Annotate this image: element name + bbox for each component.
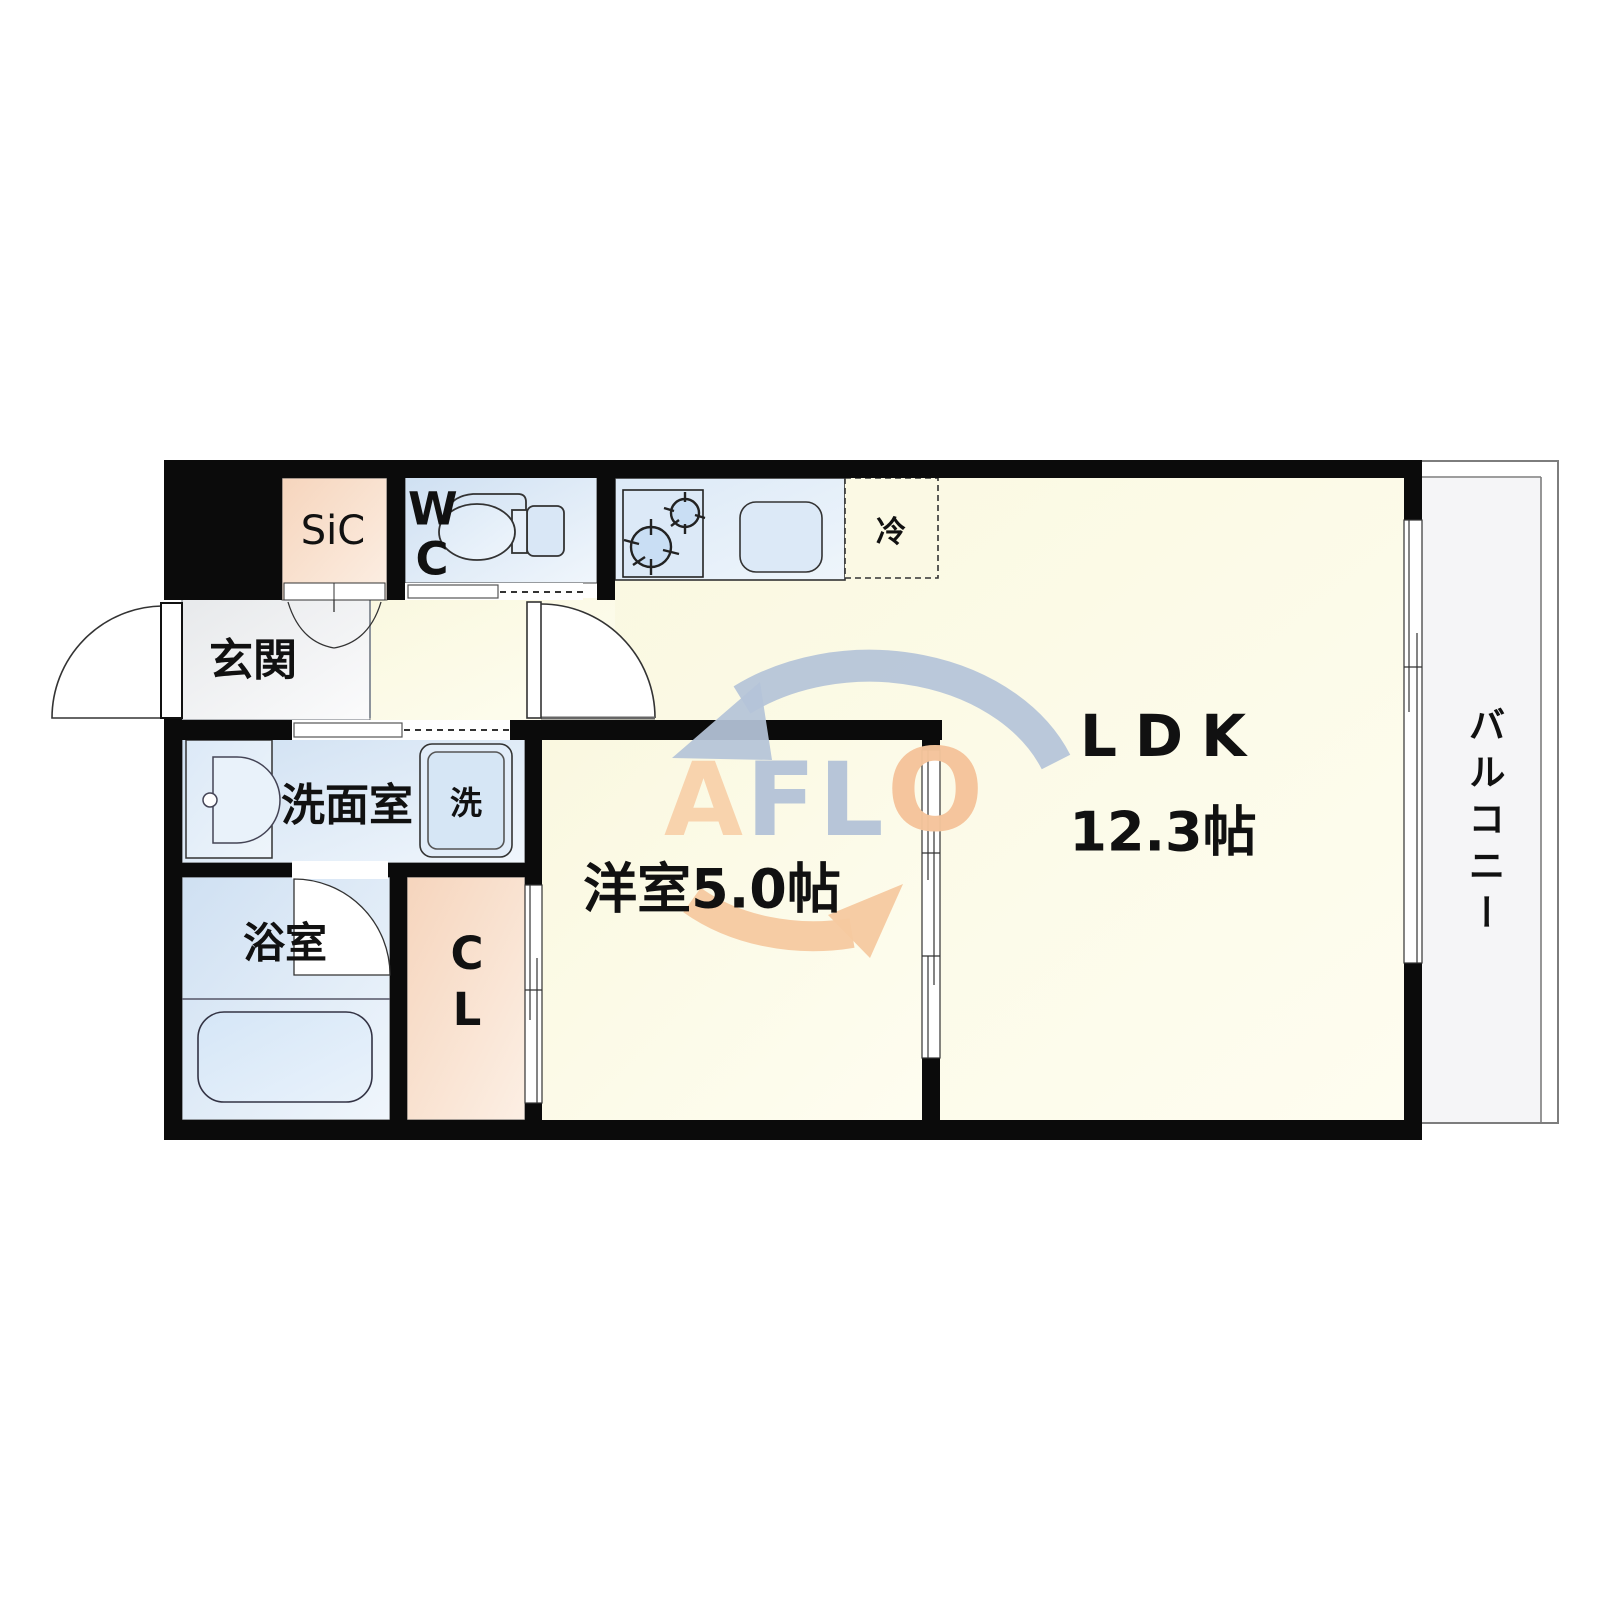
wall-bath-closet-divider	[390, 877, 407, 1120]
wall-washroom-bath-right	[388, 863, 542, 877]
floor-plan-canvas: A F L O 玄関 SiC WC 洗面室 洗 浴室 CL 洋室5.0帖 LDK…	[0, 0, 1600, 1600]
wall-bottom	[164, 1120, 1422, 1140]
washroom-sliding-door	[292, 720, 510, 740]
ldk-label: LDK	[1080, 702, 1264, 770]
wall-top	[164, 460, 1422, 478]
wall-left-lower	[164, 718, 182, 1120]
closet-sliding-door	[525, 885, 542, 1103]
balcony-label: バルコニー	[1456, 706, 1510, 941]
washroom-label: 洗面室	[281, 769, 413, 833]
ldk-size-label: 12.3帖	[1069, 788, 1256, 867]
wall-wc-kitchen-divider	[597, 460, 615, 600]
wall-washroom-bath-left	[164, 863, 292, 877]
watermark-letter-f: F	[746, 750, 819, 852]
wall-western-ldk-bottom-stub	[922, 1058, 940, 1120]
balcony-window	[1404, 520, 1422, 963]
entrance-door-swing	[52, 606, 162, 718]
washing-machine-label: 洗	[450, 778, 482, 824]
wall-closet-right-stub	[525, 1103, 542, 1120]
wall-sic-wc-divider	[387, 460, 405, 600]
watermark-letter-o: O	[887, 734, 987, 848]
bathtub	[198, 1012, 372, 1102]
western-room-label: 洋室5.0帖	[583, 845, 841, 924]
wc-sliding-door	[405, 583, 583, 600]
refrigerator-label: 冷	[876, 507, 906, 551]
wall-right-bottom	[1404, 963, 1422, 1120]
entrance-label: 玄関	[209, 624, 297, 688]
watermark-aflo-logo: A F L O	[664, 750, 987, 852]
entrance-door-leaf	[161, 603, 182, 718]
meter-box	[164, 460, 282, 600]
washbasin	[186, 740, 280, 858]
bathroom-label: 浴室	[243, 910, 327, 971]
closet-label: CL	[446, 926, 488, 1039]
wc-label: WC	[408, 485, 456, 584]
watermark-letter-a: A	[664, 750, 746, 852]
wall-hall-bottom-left	[164, 720, 292, 740]
watermark-letter-l: L	[819, 750, 887, 852]
shoe-closet-label: SiC	[301, 508, 365, 554]
wall-right-top	[1404, 460, 1422, 520]
kitchen-sink	[740, 502, 822, 572]
